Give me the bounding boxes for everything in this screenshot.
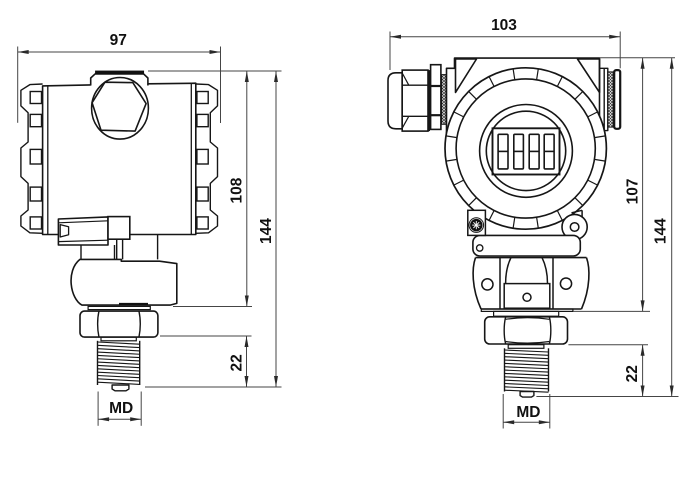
svg-text:144: 144 bbox=[258, 218, 275, 244]
svg-text:103: 103 bbox=[491, 17, 517, 34]
svg-text:MD: MD bbox=[109, 400, 133, 417]
svg-text:144: 144 bbox=[653, 218, 670, 244]
svg-text:22: 22 bbox=[228, 354, 245, 371]
svg-text:97: 97 bbox=[110, 32, 127, 49]
svg-text:107: 107 bbox=[624, 178, 641, 204]
svg-text:MD: MD bbox=[516, 404, 540, 421]
svg-text:108: 108 bbox=[229, 177, 246, 203]
svg-text:22: 22 bbox=[624, 365, 641, 382]
